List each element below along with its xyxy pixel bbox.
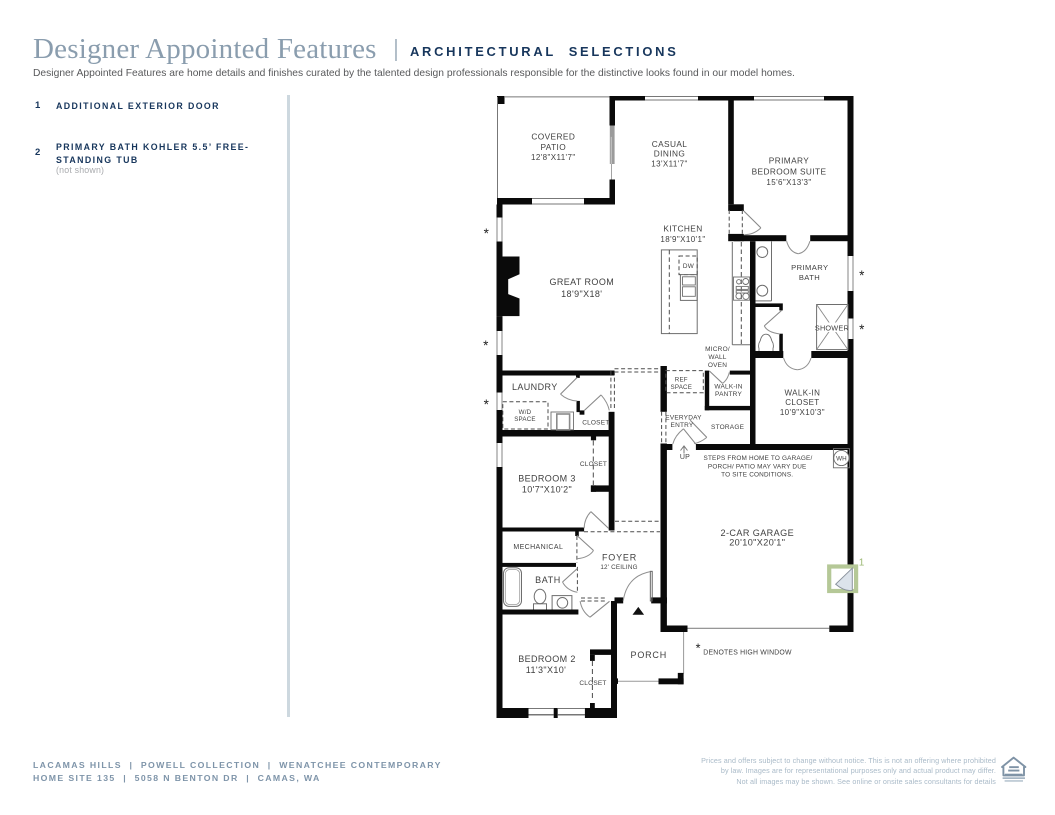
svg-text:BATH: BATH [799,273,820,282]
svg-text:20'10"X20'1": 20'10"X20'1" [729,537,785,547]
svg-text:UP: UP [680,454,690,461]
svg-text:SPACE: SPACE [671,384,693,391]
svg-text:CASUAL: CASUAL [652,139,688,149]
svg-text:PORCH: PORCH [631,650,668,660]
svg-text:EVERYDAY: EVERYDAY [665,414,702,421]
svg-text:12' CEILING: 12' CEILING [600,564,637,571]
svg-text:*: * [696,642,701,656]
svg-text:DENOTES HIGH WINDOW: DENOTES HIGH WINDOW [703,649,792,656]
svg-text:STEPS FROM HOME TO GARAGE/: STEPS FROM HOME TO GARAGE/ [703,455,812,462]
svg-text:SPACE: SPACE [514,416,536,423]
svg-text:SHOWER: SHOWER [815,323,849,332]
svg-text:*: * [484,397,490,412]
svg-text:13'X11'7": 13'X11'7" [651,160,687,169]
svg-text:FOYER: FOYER [602,552,637,562]
svg-text:DINING: DINING [654,149,685,159]
svg-text:CLOSET: CLOSET [785,398,819,407]
svg-text:TO SITE CONDITIONS.: TO SITE CONDITIONS. [721,472,793,479]
svg-text:18'9"X10'1": 18'9"X10'1" [660,235,705,244]
svg-text:STORAGE: STORAGE [711,424,745,431]
svg-text:*: * [483,338,489,353]
svg-text:10'7"X10'2": 10'7"X10'2" [522,484,572,494]
svg-text:BEDROOM 3: BEDROOM 3 [518,473,576,483]
svg-text:10'9"X10'3": 10'9"X10'3" [780,408,825,417]
svg-text:BATH: BATH [535,575,561,585]
svg-text:CLOSET: CLOSET [582,420,609,427]
svg-text:BEDROOM 2: BEDROOM 2 [518,654,576,664]
svg-text:11'3"X10': 11'3"X10' [526,665,567,675]
svg-text:MECHANICAL: MECHANICAL [513,544,563,551]
svg-text:WALL: WALL [708,354,726,361]
svg-text:1: 1 [859,558,865,569]
svg-text:PATIO: PATIO [540,142,566,152]
svg-text:BEDROOM SUITE: BEDROOM SUITE [752,167,827,177]
svg-text:WALK-IN: WALK-IN [784,388,820,397]
svg-text:PORCH/ PATIO MAY VARY DUE: PORCH/ PATIO MAY VARY DUE [708,463,807,470]
svg-text:KITCHEN: KITCHEN [663,223,702,233]
svg-text:COVERED: COVERED [531,132,575,142]
svg-text:OVEN: OVEN [708,362,727,369]
svg-text:WALK-IN: WALK-IN [714,383,742,390]
svg-text:REF: REF [675,377,688,384]
svg-text:*: * [484,226,490,241]
svg-text:ENTRY: ENTRY [671,422,694,429]
svg-text:WH: WH [836,456,847,463]
svg-text:PANTRY: PANTRY [715,391,742,398]
svg-text:CLOSET: CLOSET [580,461,607,468]
svg-text:PRIMARY: PRIMARY [769,156,810,166]
svg-text:W/D: W/D [519,409,532,416]
svg-text:18'9"X18': 18'9"X18' [561,289,602,299]
svg-text:12'8"X11'7": 12'8"X11'7" [531,153,576,162]
svg-text:CLOSET: CLOSET [579,680,606,687]
svg-text:*: * [859,268,865,283]
svg-text:*: * [859,322,865,337]
svg-text:DW: DW [683,263,695,270]
svg-text:GREAT ROOM: GREAT ROOM [549,277,614,287]
svg-text:LAUNDRY: LAUNDRY [512,382,558,392]
svg-text:PRIMARY: PRIMARY [791,263,828,272]
svg-text:MICRO/: MICRO/ [705,346,730,353]
svg-text:15'6"X13'3": 15'6"X13'3" [766,178,811,187]
